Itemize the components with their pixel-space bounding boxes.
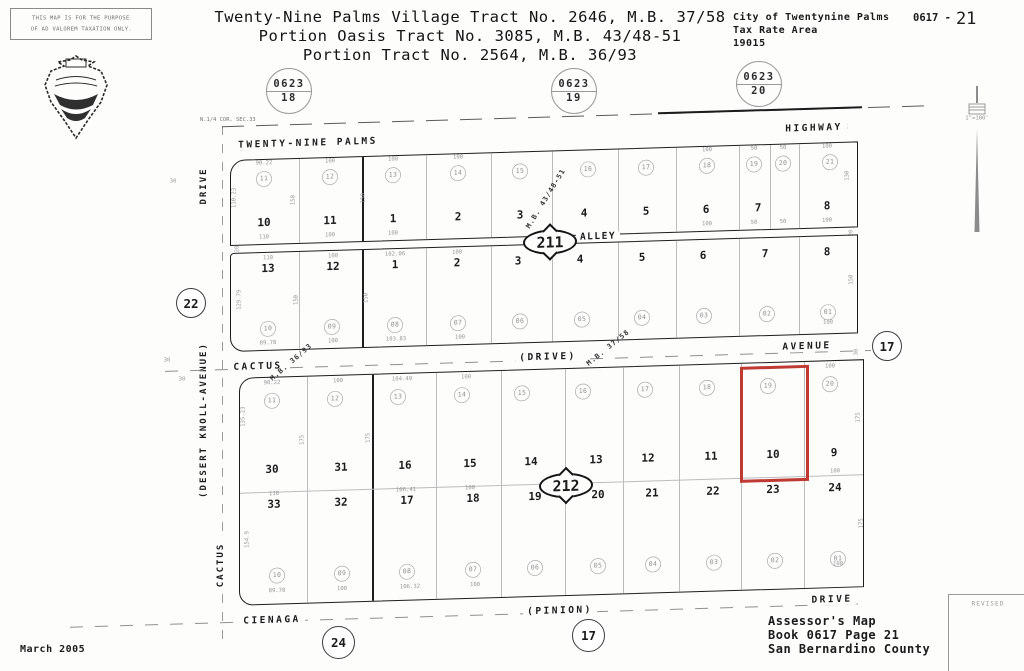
dimension-label: 100 xyxy=(388,230,398,236)
dimension-label: 175 xyxy=(299,435,305,445)
ref-circle-west: 22 xyxy=(176,288,206,318)
street-west-drive: DRIVE xyxy=(197,164,211,207)
assessor-map-page: { "header": { "disclaimer_line1": "THIS … xyxy=(0,0,1024,668)
tax-rate-area-number: 19015 xyxy=(733,38,766,49)
street-desert-knoll: (DESERT KNOLL-AVENUE) xyxy=(197,339,211,501)
dimension-label: 150 xyxy=(290,195,296,205)
lot-number: 24 xyxy=(828,482,841,493)
dimension-label: 100 xyxy=(337,586,347,592)
ref-circle-east: 17 xyxy=(872,331,902,361)
lot-number: 10 xyxy=(257,217,270,228)
dimension-label: 175 xyxy=(858,518,864,528)
page-number: 20 xyxy=(751,86,767,97)
lot-number: 12 xyxy=(326,261,339,272)
dimension-label: 100 xyxy=(453,154,463,160)
dimension-label: 100 xyxy=(328,253,338,259)
dimension-label: 100 xyxy=(388,156,398,162)
scale-label: 1"=100' xyxy=(965,115,989,121)
dimension-label: 100 xyxy=(830,468,840,474)
street-pinion: (PINION) xyxy=(523,605,597,617)
dimension-label: 50 xyxy=(751,220,758,226)
dimension-label: 150 xyxy=(360,193,366,203)
lot-number: 33 xyxy=(267,498,280,509)
street-twentynine-palms: TWENTY-NINE PALMS xyxy=(234,136,382,150)
section-line-solid xyxy=(658,106,862,114)
dimension-label: 50 xyxy=(780,219,787,225)
lot-number: 15 xyxy=(463,458,476,469)
dimension-label: 102.06 xyxy=(385,251,405,257)
lot-number: 7 xyxy=(762,248,769,259)
lot-number: 6 xyxy=(703,204,710,215)
map-date: March 2005 xyxy=(20,644,85,656)
disclaimer-box: THIS MAP IS FOR THE PURPOSE OF AD VALORE… xyxy=(10,8,152,40)
dimension-label: 100 xyxy=(333,378,343,384)
page-number: 18 xyxy=(281,93,297,104)
dimension-label: 30 xyxy=(179,376,186,382)
dimension-label: 100 xyxy=(825,363,835,369)
lot-number: 16 xyxy=(398,460,411,471)
dimension-label: 100 xyxy=(325,158,335,164)
lot-number: 6 xyxy=(700,250,707,261)
lot-number: 21 xyxy=(645,487,658,498)
revised-box: REVISED xyxy=(948,594,1024,671)
sheet-number: 0617 - 21 xyxy=(913,9,976,29)
county-seal-icon xyxy=(38,50,114,142)
dimension-label: 100 xyxy=(325,232,335,238)
disclaimer-line1: THIS MAP IS FOR THE PURPOSE xyxy=(32,15,130,22)
lot-number: 5 xyxy=(639,252,646,263)
dimension-label: 110 xyxy=(263,255,273,261)
dimension-label: 106.41 xyxy=(396,487,416,493)
lot-number: 12 xyxy=(641,452,654,463)
dimension-label: 150 xyxy=(293,295,299,305)
lot-number: 11 xyxy=(323,215,336,226)
lot-number: 7 xyxy=(755,202,762,213)
lot-number: 4 xyxy=(577,254,584,265)
dimension-label: 175 xyxy=(365,433,371,443)
dimension-label: 100 xyxy=(822,217,832,223)
dimension-label: 150 xyxy=(848,274,854,284)
assessor-map-line1: Assessor's Map xyxy=(768,614,930,628)
lot-number: 1 xyxy=(390,213,397,224)
dimension-label: 150 xyxy=(363,293,369,303)
lot-number: 8 xyxy=(824,246,831,257)
lot-number: 18 xyxy=(466,493,479,504)
map-title-line2: Portion Oasis Tract No. 3085, M.B. 43/48… xyxy=(150,27,790,45)
disclaimer-line2: OF AD VALOREM TAXATION ONLY. xyxy=(30,26,131,33)
map-block: TWENTY-NINE PALMS HIGHWAY 11 12 13 14 15… xyxy=(230,93,875,657)
dimension-label: 100 xyxy=(470,582,480,588)
sheet-index-circle-18: 0623 18 xyxy=(266,68,312,114)
lot-number: 32 xyxy=(334,497,347,508)
lot-number: 20 xyxy=(591,489,604,500)
dimension-label: 110 xyxy=(269,491,279,497)
highlighted-parcel[interactable] xyxy=(740,365,809,483)
lot-number: 5 xyxy=(643,206,650,217)
cienaga-pinion-centerline xyxy=(70,603,866,628)
dimension-label: 30 xyxy=(164,357,171,363)
dimension-label: 154.9 xyxy=(244,531,250,548)
dimension-label: 50 xyxy=(751,146,758,152)
dimension-label: 100 xyxy=(452,249,462,255)
dimension-label: 100 xyxy=(455,334,465,340)
dimension-label: 110.23 xyxy=(231,188,237,208)
lot-number: 23 xyxy=(766,484,779,495)
dimension-label: 90.22 xyxy=(264,380,281,386)
lot-number: 14 xyxy=(524,456,537,467)
north-arrow-icon xyxy=(955,84,1000,236)
lot-number: 17 xyxy=(400,495,413,506)
dimension-label: 129.79 xyxy=(236,290,242,310)
street-avenue: AVENUE xyxy=(778,341,835,352)
dimension-label: 100 xyxy=(702,221,712,227)
dimension-label: 89.78 xyxy=(260,340,277,346)
dimension-label: 100 xyxy=(328,338,338,344)
book-number: 0623 xyxy=(743,72,774,83)
book-number: 0623 xyxy=(558,79,589,90)
street-drive-paren: (DRIVE) xyxy=(515,352,581,363)
lot-number: 1 xyxy=(392,259,399,270)
lot-number: 2 xyxy=(454,257,461,268)
city-name: City of Twentynine Palms xyxy=(733,12,890,23)
dimension-label: 135.23 xyxy=(240,406,246,426)
lot-number: 2 xyxy=(455,211,462,222)
dimension-label: 89.78 xyxy=(269,588,286,594)
dimension-label: 130 xyxy=(844,171,850,181)
dimension-label: 103.83 xyxy=(386,336,406,342)
lot-number: 19 xyxy=(528,491,541,502)
dimension-label: 104.49 xyxy=(392,376,412,382)
dimension-label: 50 xyxy=(780,145,787,151)
revised-label: REVISED xyxy=(972,601,1005,608)
map-title-line3: Portion Tract No. 2564, M.B. 36/93 xyxy=(150,46,790,64)
lot-number: 4 xyxy=(581,207,588,218)
lot-number: 9 xyxy=(831,447,838,458)
dimension-label: 106.32 xyxy=(400,584,420,590)
dimension-label: 100 xyxy=(461,374,471,380)
lot-number: 13 xyxy=(589,454,602,465)
map-title-line1: Twenty-Nine Palms Village Tract No. 2646… xyxy=(150,8,790,26)
dimension-label: 100 xyxy=(702,147,712,153)
assessor-map-line2: Book 0617 Page 21 xyxy=(768,628,930,642)
sheet-prefix: 0617 - xyxy=(913,9,951,24)
lot-number: 13 xyxy=(261,263,274,274)
dimension-label: 100 xyxy=(822,143,832,149)
assessor-map-note: Assessor's Map Book 0617 Page 21 San Ber… xyxy=(768,614,930,656)
lot-number: 31 xyxy=(334,462,347,473)
lot-number: 3 xyxy=(517,209,524,220)
lot-number: 3 xyxy=(515,255,522,266)
lot-number: 8 xyxy=(824,200,831,211)
dimension-label: 175 xyxy=(855,412,861,422)
dimension-label: 100 xyxy=(833,561,843,567)
lot-number: 30 xyxy=(265,464,278,475)
tax-rate-area-label: Tax Rate Area xyxy=(733,25,818,36)
dimension-label: 30 xyxy=(170,178,177,184)
dimension-label: 110 xyxy=(259,234,269,240)
dimension-label: 100 xyxy=(465,485,475,491)
street-drive-bottom: DRIVE xyxy=(807,594,856,605)
assessor-map-line3: San Bernardino County xyxy=(768,642,930,656)
dimension-label: 100 xyxy=(823,319,833,325)
street-highway: HIGHWAY xyxy=(781,123,847,134)
lot-number: 22 xyxy=(706,485,719,496)
sheet-page: 21 xyxy=(956,9,976,29)
book-number: 0623 xyxy=(273,79,304,90)
lot-number: 11 xyxy=(704,451,717,462)
dimension-label: 90.22 xyxy=(256,160,273,166)
street-cactus-west: CACTUS xyxy=(214,540,228,591)
street-cienaga: CIENAGA xyxy=(239,615,305,626)
